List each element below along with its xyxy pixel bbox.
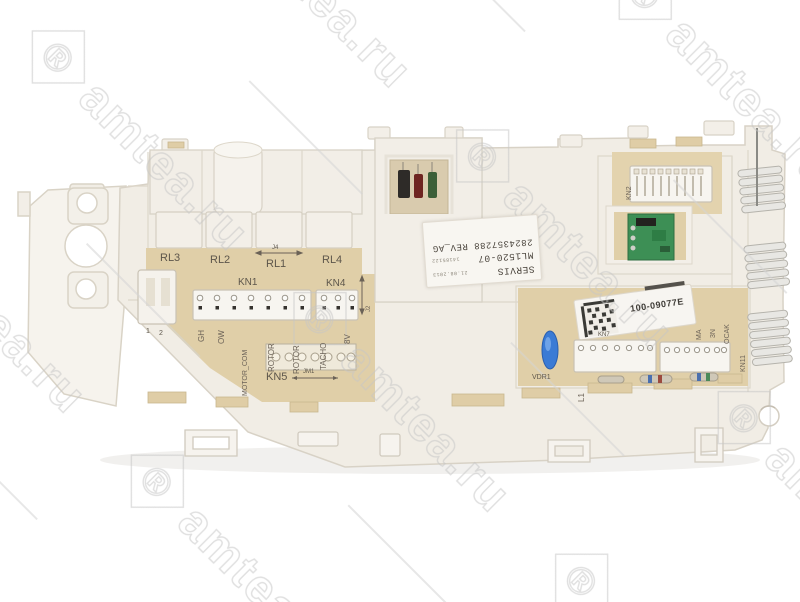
sticker-date: 21.08.2013 <box>432 269 467 277</box>
pin-label-8v: 8V <box>344 334 352 344</box>
product-photo: ® amtea.ru <box>0 0 800 602</box>
pin-label-gh: GH <box>198 330 206 342</box>
silkscreen-kn4: KN4 <box>326 279 345 289</box>
pin-label-ocak: OCAK <box>724 324 731 344</box>
silkscreen-j4: J4 <box>272 245 278 251</box>
pin-label-rotor-1: ROTOR <box>268 343 276 372</box>
silkscreen-vdr1: VDR1 <box>532 374 551 381</box>
pin-number-1: 1 <box>146 328 150 335</box>
sticker-serial: 14185122 <box>431 256 459 264</box>
pin-label-rotor-2: ROTOR <box>293 345 301 374</box>
pin-number-2: 2 <box>159 330 163 337</box>
silkscreen-rl4: RL4 <box>322 255 342 266</box>
sticker-model: ML1520-07 <box>477 249 533 264</box>
pin-label-motor-com: MOTOR_COM <box>242 350 249 396</box>
silkscreen-kn5: KN5 <box>266 372 287 383</box>
silkscreen-rl3: RL3 <box>160 253 180 264</box>
silkscreen-kn2: KN2 <box>626 186 633 200</box>
service-sticker: SERVIS 21.08.2013 ML1520-07 14185122 282… <box>422 214 542 288</box>
sticker-line-servis: SERVIS <box>497 263 535 277</box>
silkscreen-rl1: RL1 <box>266 259 286 270</box>
silkscreen-j2: J2 <box>366 306 372 312</box>
silkscreen-kn7: KN7 <box>598 332 610 338</box>
silkscreen-rl2: RL2 <box>210 255 230 266</box>
silkscreen-jm1: JM1 <box>303 369 314 375</box>
silkscreen-kn11: KN11 <box>740 355 747 372</box>
silkscreen-kn1: KN1 <box>238 278 257 288</box>
pin-label-ma: MA <box>696 330 703 341</box>
pin-label-3n: 3N <box>710 329 717 338</box>
pin-label-l1: L1 <box>578 393 586 402</box>
pin-label-tacho: TACHO <box>320 343 328 370</box>
pin-label-ow: OW <box>218 330 226 344</box>
